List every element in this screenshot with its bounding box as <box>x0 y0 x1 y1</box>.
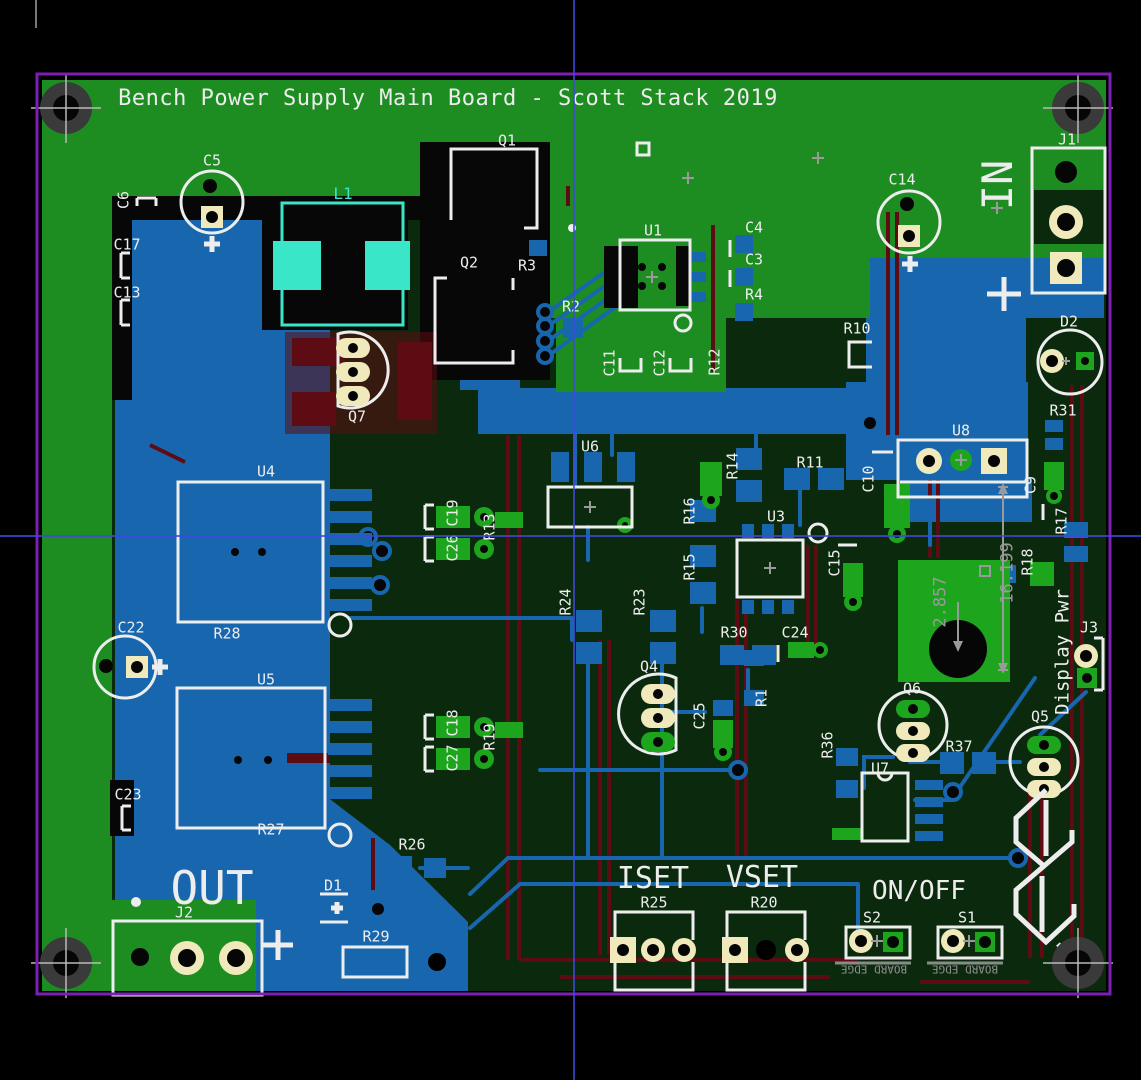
cursor-crosshair-vertical <box>573 0 575 1080</box>
cursor-crosshair-horizontal <box>0 535 1141 537</box>
board-graphics <box>0 0 1141 1080</box>
pcb-canvas[interactable]: Bench Power Supply Main Board - Scott St… <box>0 0 1141 1080</box>
inductor-l1[interactable] <box>273 203 410 325</box>
axis-origin-tick <box>35 0 37 28</box>
